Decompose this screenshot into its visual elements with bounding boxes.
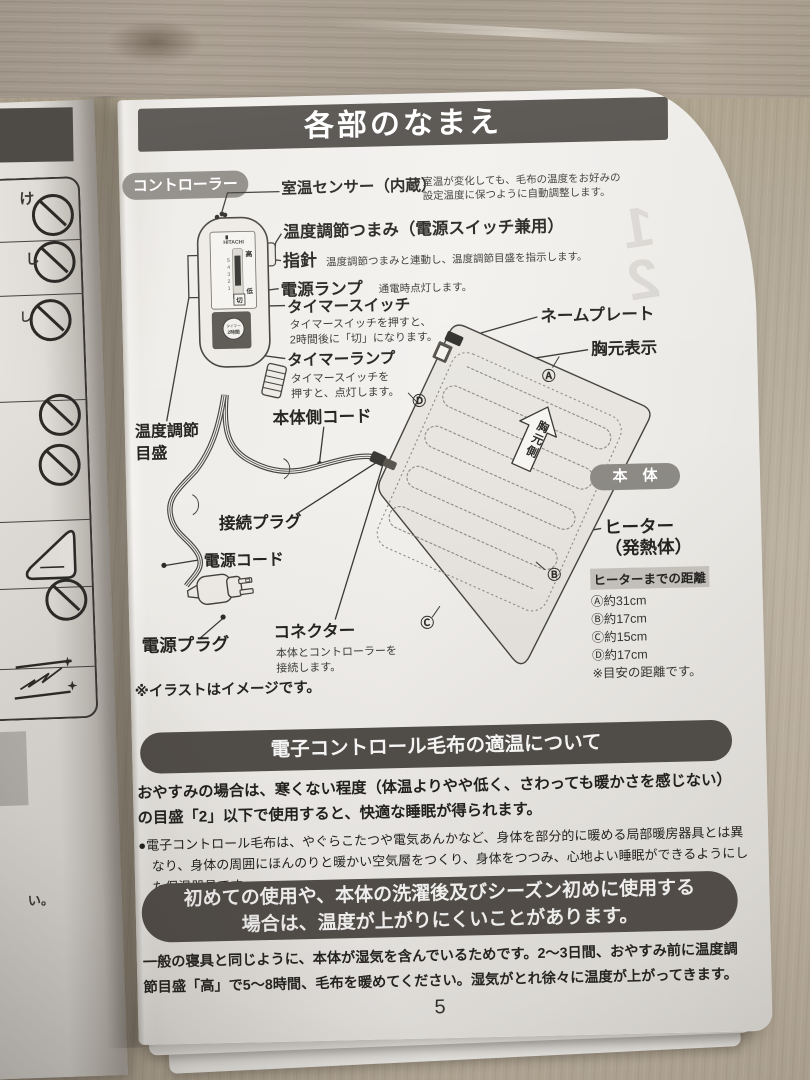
label-heater: ヒーター （発熱体）: [604, 515, 692, 559]
label-body-cord: 本体側コード: [272, 407, 371, 429]
marker-d: Ⓓ: [412, 392, 426, 408]
left-page-gray-block: [0, 731, 29, 806]
desc-power-lamp: 通電時点灯します。: [379, 280, 473, 297]
label-chest-mark: 胸元表示: [591, 338, 657, 360]
body-section-badge: 本 体: [590, 463, 681, 491]
scale-number: 4: [227, 265, 230, 271]
dial-slider: [234, 256, 241, 286]
cutoff-text-fragment: し: [19, 308, 32, 325]
label-connector: コネクター: [273, 621, 355, 643]
desc-timer-switch: タイマースイッチを押すと、 2時間後に「切」になります。: [289, 315, 438, 348]
label-connect-plug: 接続プラグ: [219, 512, 302, 534]
spark-warning-icon: [11, 654, 81, 708]
timer-button-icon: [223, 318, 244, 339]
label-power-plug: 電源プラグ: [142, 634, 230, 657]
left-page-banner: [0, 107, 74, 163]
label-power-cord: 電源コード: [204, 551, 284, 572]
marker-b: Ⓑ: [547, 566, 561, 582]
label-nameplate: ネームプレート: [540, 304, 654, 327]
desc-timer-lamp: タイマースイッチを 押すと、点灯します。: [291, 370, 400, 402]
timer-button-label1: タイマー: [226, 323, 241, 328]
scale-number: 2: [228, 279, 231, 285]
scale-off-label: 切: [236, 297, 243, 305]
star-icon: [67, 680, 77, 690]
star-icon: [62, 657, 72, 667]
scale-low-label: 低: [245, 286, 253, 295]
manual-page: 各部のなまえ コントローラー 1 2: [117, 86, 772, 1045]
cutoff-text-fragment: し: [25, 248, 40, 268]
desc-room-sensor: 室温が変化しても、毛布の温度をお好みの 設定温度に保つように自動調整します。: [422, 171, 621, 203]
desc-connector: 本体とコントローラーを 接続します。: [276, 644, 398, 677]
wood-knot: [108, 20, 203, 64]
faceplate-mark: [225, 235, 228, 239]
label-room-sensor: 室温センサー（内蔵）: [281, 177, 436, 199]
scale-number: 5: [227, 258, 230, 264]
cord-strain-relief: [261, 363, 287, 398]
heater-distance-title: ヒーターまでの距離: [590, 566, 709, 590]
scale-high-label: 高: [245, 249, 252, 258]
label-pointer: 指針: [283, 251, 317, 273]
heater-distance-note: ※目安の距離です。: [592, 660, 702, 681]
scale-number: 3: [227, 272, 230, 278]
label-temp-scale: 温度調節 目盛: [135, 421, 200, 466]
scale-number: 1: [228, 286, 231, 292]
cutoff-text-fragment: い。: [27, 889, 54, 909]
marker-a: Ⓐ: [542, 367, 556, 383]
label-timer-lamp: タイマーランプ: [287, 350, 395, 371]
brand-logo: HITACHI: [223, 239, 244, 245]
iron-shape-icon: [21, 522, 79, 584]
cutoff-text-fragment: け: [19, 188, 35, 210]
